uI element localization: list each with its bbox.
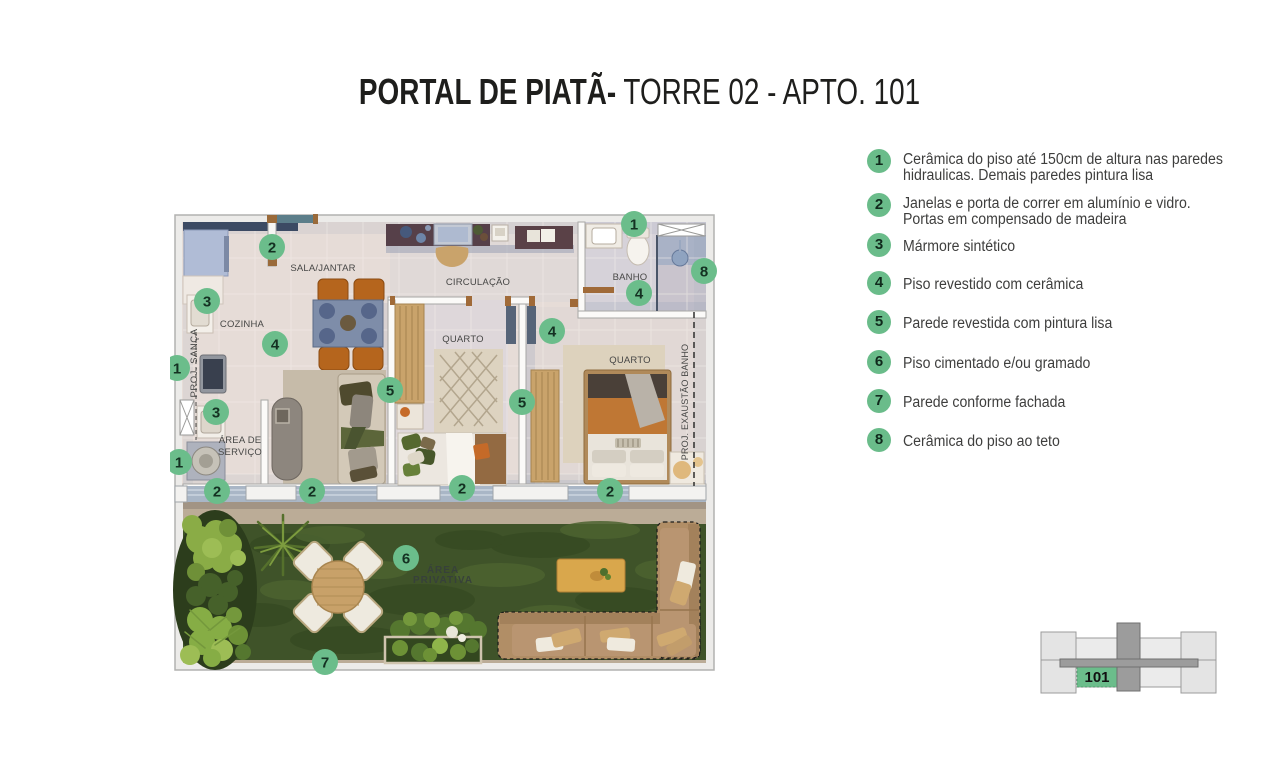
svg-text:QUARTO: QUARTO [442, 334, 484, 345]
svg-text:SALA/JANTAR: SALA/JANTAR [290, 263, 355, 274]
svg-text:PROJ. SANÇA: PROJ. SANÇA [189, 328, 200, 397]
svg-text:2: 2 [308, 484, 316, 501]
svg-text:101: 101 [1084, 669, 1109, 686]
svg-text:COZINHA: COZINHA [220, 319, 265, 330]
svg-text:QUARTO: QUARTO [609, 355, 651, 366]
svg-text:1: 1 [175, 455, 183, 472]
svg-text:4: 4 [635, 286, 644, 303]
svg-text:SERVIÇO: SERVIÇO [218, 447, 262, 458]
svg-text:1: 1 [630, 217, 638, 234]
svg-text:2: 2 [606, 484, 614, 501]
svg-text:2: 2 [268, 240, 276, 257]
svg-text:2: 2 [458, 481, 466, 498]
svg-text:7: 7 [321, 655, 329, 672]
svg-text:2: 2 [213, 484, 221, 501]
svg-text:1: 1 [173, 361, 181, 378]
svg-text:ÁREA DE: ÁREA DE [219, 435, 262, 446]
svg-text:4: 4 [548, 324, 557, 341]
svg-text:4: 4 [271, 337, 280, 354]
svg-text:8: 8 [700, 264, 708, 281]
svg-text:PROJ. EXAUSTÃO BANHO: PROJ. EXAUSTÃO BANHO [680, 344, 690, 461]
svg-text:5: 5 [386, 383, 394, 400]
svg-text:PRIVATIVA: PRIVATIVA [413, 575, 473, 586]
svg-text:3: 3 [203, 294, 211, 311]
svg-text:3: 3 [212, 405, 220, 422]
svg-text:5: 5 [518, 395, 526, 412]
svg-text:CIRCULAÇÃO: CIRCULAÇÃO [446, 277, 510, 288]
svg-text:6: 6 [402, 551, 410, 568]
